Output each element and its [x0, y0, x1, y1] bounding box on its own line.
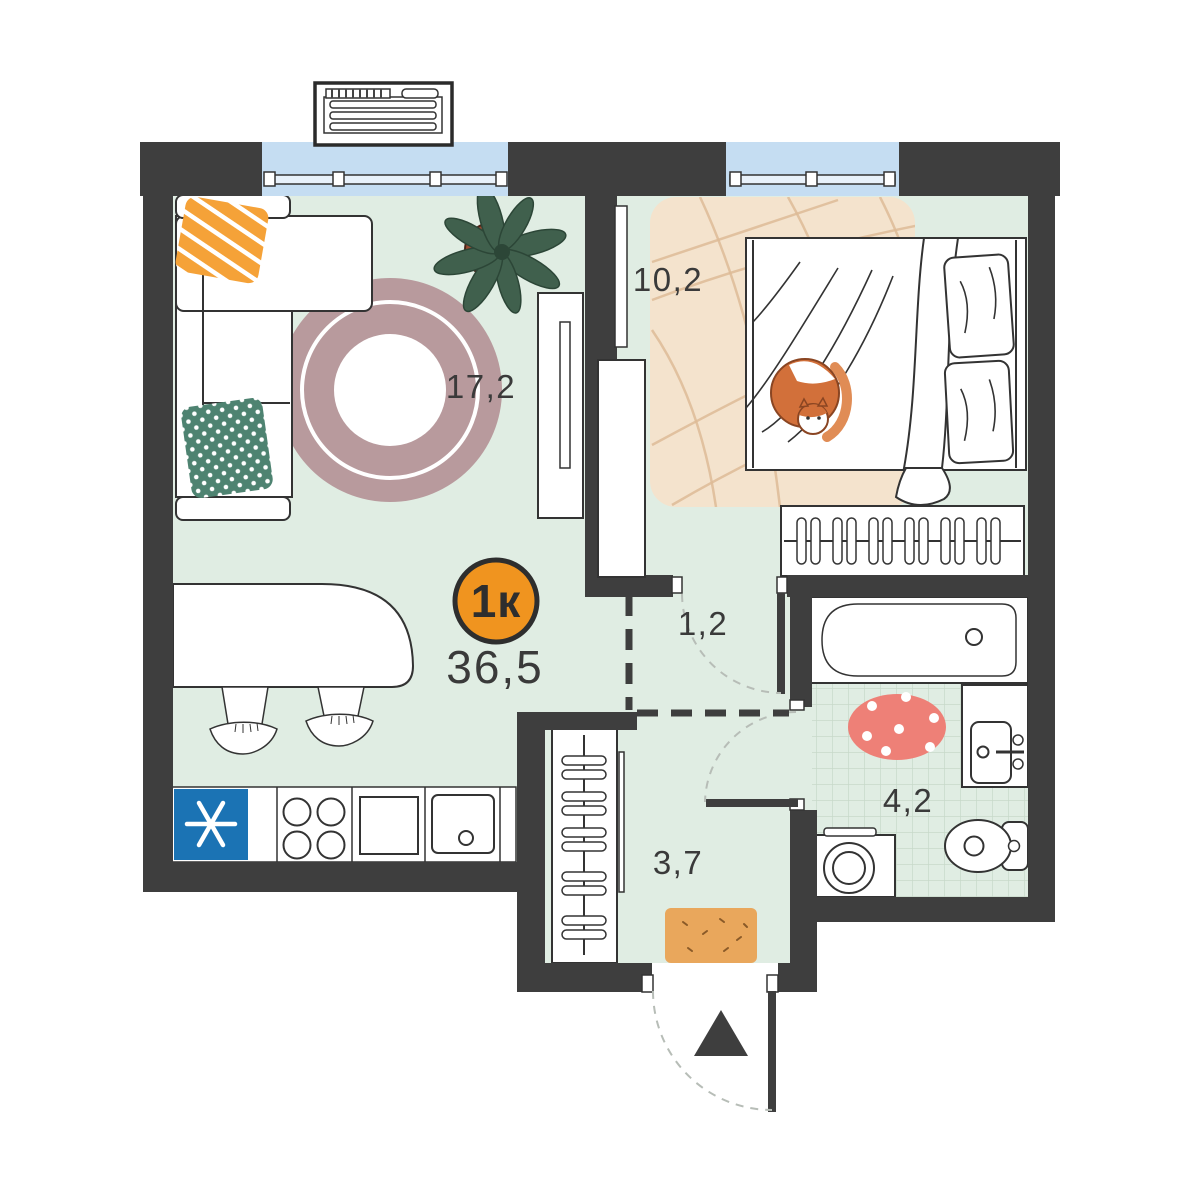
sliding-door-panel — [615, 206, 627, 347]
wall-kitchen-bottom — [143, 862, 545, 892]
area-label-bedroom: 10,2 — [633, 261, 703, 298]
wall-entry-left — [517, 712, 545, 992]
wall-entry-top-stub — [545, 712, 637, 730]
door-jamb — [790, 700, 804, 710]
pillow-teal — [180, 397, 274, 500]
wall-left — [143, 196, 173, 892]
wall-right — [1028, 142, 1055, 922]
hallway-floor — [617, 592, 817, 963]
bed-pillow — [944, 254, 1015, 358]
bedroom-door-leaf — [777, 593, 785, 694]
entrance-door-leaf — [768, 991, 776, 1112]
floorplan-canvas: 17,2 10,2 1,2 4,2 3,7 1к 36,5 — [0, 0, 1200, 1200]
door-jamb — [777, 577, 787, 593]
bathtub — [810, 597, 1028, 683]
dining-table — [173, 584, 413, 687]
sofa-armrest-bottom — [176, 497, 290, 520]
bed-pillow — [944, 360, 1013, 463]
closet-door-track — [619, 752, 624, 892]
wall-bedroom-bathroom — [787, 575, 1028, 597]
window-living — [262, 142, 508, 196]
entrance-arrow-icon — [694, 1010, 748, 1056]
door-jamb — [672, 577, 682, 593]
sliding-door-leaf — [598, 360, 645, 577]
washing-machine — [810, 828, 895, 897]
door-jamb — [642, 975, 653, 992]
area-label-entry: 3,7 — [653, 844, 703, 881]
bed — [746, 238, 1026, 505]
living-shelf-inner — [560, 322, 570, 468]
bedroom-wardrobe — [781, 506, 1024, 576]
wall-entry-bottom — [545, 963, 652, 992]
door-jamb — [767, 975, 778, 992]
toilet — [945, 820, 1028, 872]
floorplan-drawing: 17,2 10,2 1,2 4,2 3,7 1к 36,5 — [0, 0, 1200, 1200]
area-label-hallway: 1,2 — [678, 605, 728, 642]
kitchen-cabinet — [360, 797, 418, 854]
doormat — [665, 908, 757, 963]
vanity-sink — [962, 685, 1028, 787]
bathroom-door-leaf — [706, 799, 798, 807]
area-label-living: 17,2 — [446, 368, 516, 405]
wall-bathroom-west-lower — [790, 810, 817, 963]
wall-living-divider-foot — [585, 575, 673, 597]
apartment-type-label: 1к — [471, 575, 522, 627]
entry-closet — [552, 728, 624, 963]
pillow-orange — [174, 195, 270, 284]
window-bedroom — [726, 142, 899, 196]
total-area-label: 36,5 — [446, 641, 544, 693]
area-label-bathroom: 4,2 — [883, 782, 933, 819]
ac-unit — [315, 83, 452, 145]
wall-bathroom-bottom — [790, 897, 1055, 922]
kitchen-counter — [172, 787, 516, 862]
kitchen-sink — [432, 795, 494, 853]
wall-entrance-right — [778, 963, 817, 992]
